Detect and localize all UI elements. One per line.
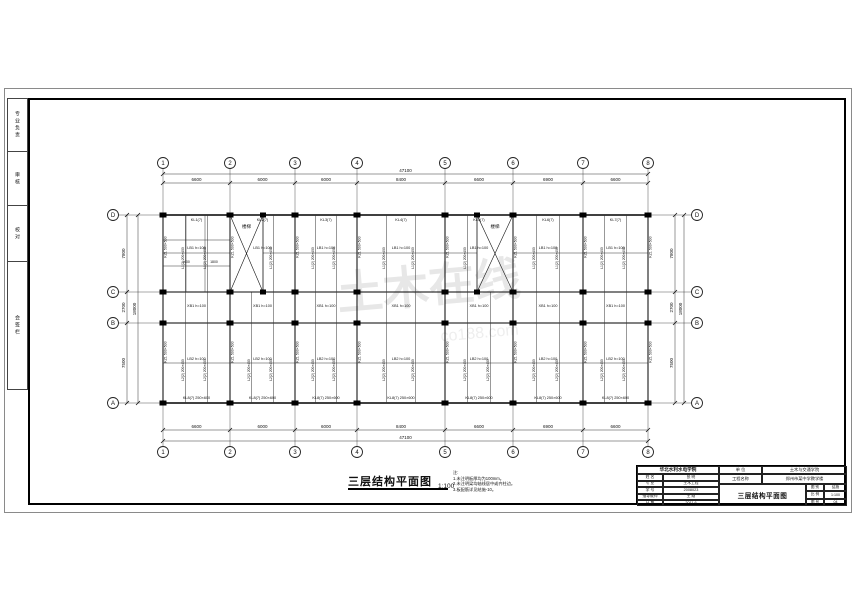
sheet-inner-border — [28, 98, 846, 505]
signature-strip-label: 审核 — [14, 172, 21, 186]
title-block-mini-value: 1:100 — [824, 491, 847, 498]
title-block-project-value: 郑州市某中学教学楼 — [762, 474, 847, 484]
title-block: 华北水利水电学院 单 位 土木与交通学院 工程名称 郑州市某中学教学楼 三层结构… — [636, 465, 846, 505]
plan-title: 三层结构平面图 — [348, 473, 432, 489]
title-block-mini-label: 图 别 — [806, 484, 824, 491]
signature-strip-box: 专业负责 — [7, 98, 28, 152]
signature-strip: 专业负责审核校对会签栏 — [7, 98, 28, 390]
title-block-mini-value: 04 — [824, 499, 847, 506]
signature-strip-box: 校对 — [7, 206, 28, 262]
signature-strip-label: 专业负责 — [14, 111, 21, 139]
signature-strip-box: 会签栏 — [7, 262, 28, 390]
cad-drawing-screenshot: 专业负责审核校对会签栏 土木在线co188.com660066006000600… — [0, 0, 858, 608]
signature-strip-label: 校对 — [14, 227, 21, 241]
notes-block: 注: 1.未注明板厚均为100mm。2.未注明梁均轴线居中或齐柱边。3.板配筋详… — [453, 470, 563, 492]
title-block-mini-value: 结施 — [824, 484, 847, 491]
title-block-school: 华北水利水电学院 — [637, 466, 719, 474]
signature-strip-box: 审核 — [7, 152, 28, 206]
title-block-drawing-title: 三层结构平面图 — [719, 484, 806, 506]
title-block-mini-label: 比 例 — [806, 491, 824, 498]
title-block-row-label: 日 期 — [637, 500, 663, 506]
signature-strip-label: 会签栏 — [14, 315, 21, 336]
title-block-project-label: 工程名称 — [719, 474, 762, 484]
title-block-unit-label: 单 位 — [719, 466, 762, 474]
plan-title-underline — [348, 488, 448, 490]
note-line: 3.板配筋详见结施-10。 — [453, 487, 563, 493]
title-block-mini-label: 图 号 — [806, 499, 824, 506]
title-block-row-value: 2011.6 — [663, 500, 719, 506]
title-block-unit-value: 土木与交通学院 — [762, 466, 847, 474]
